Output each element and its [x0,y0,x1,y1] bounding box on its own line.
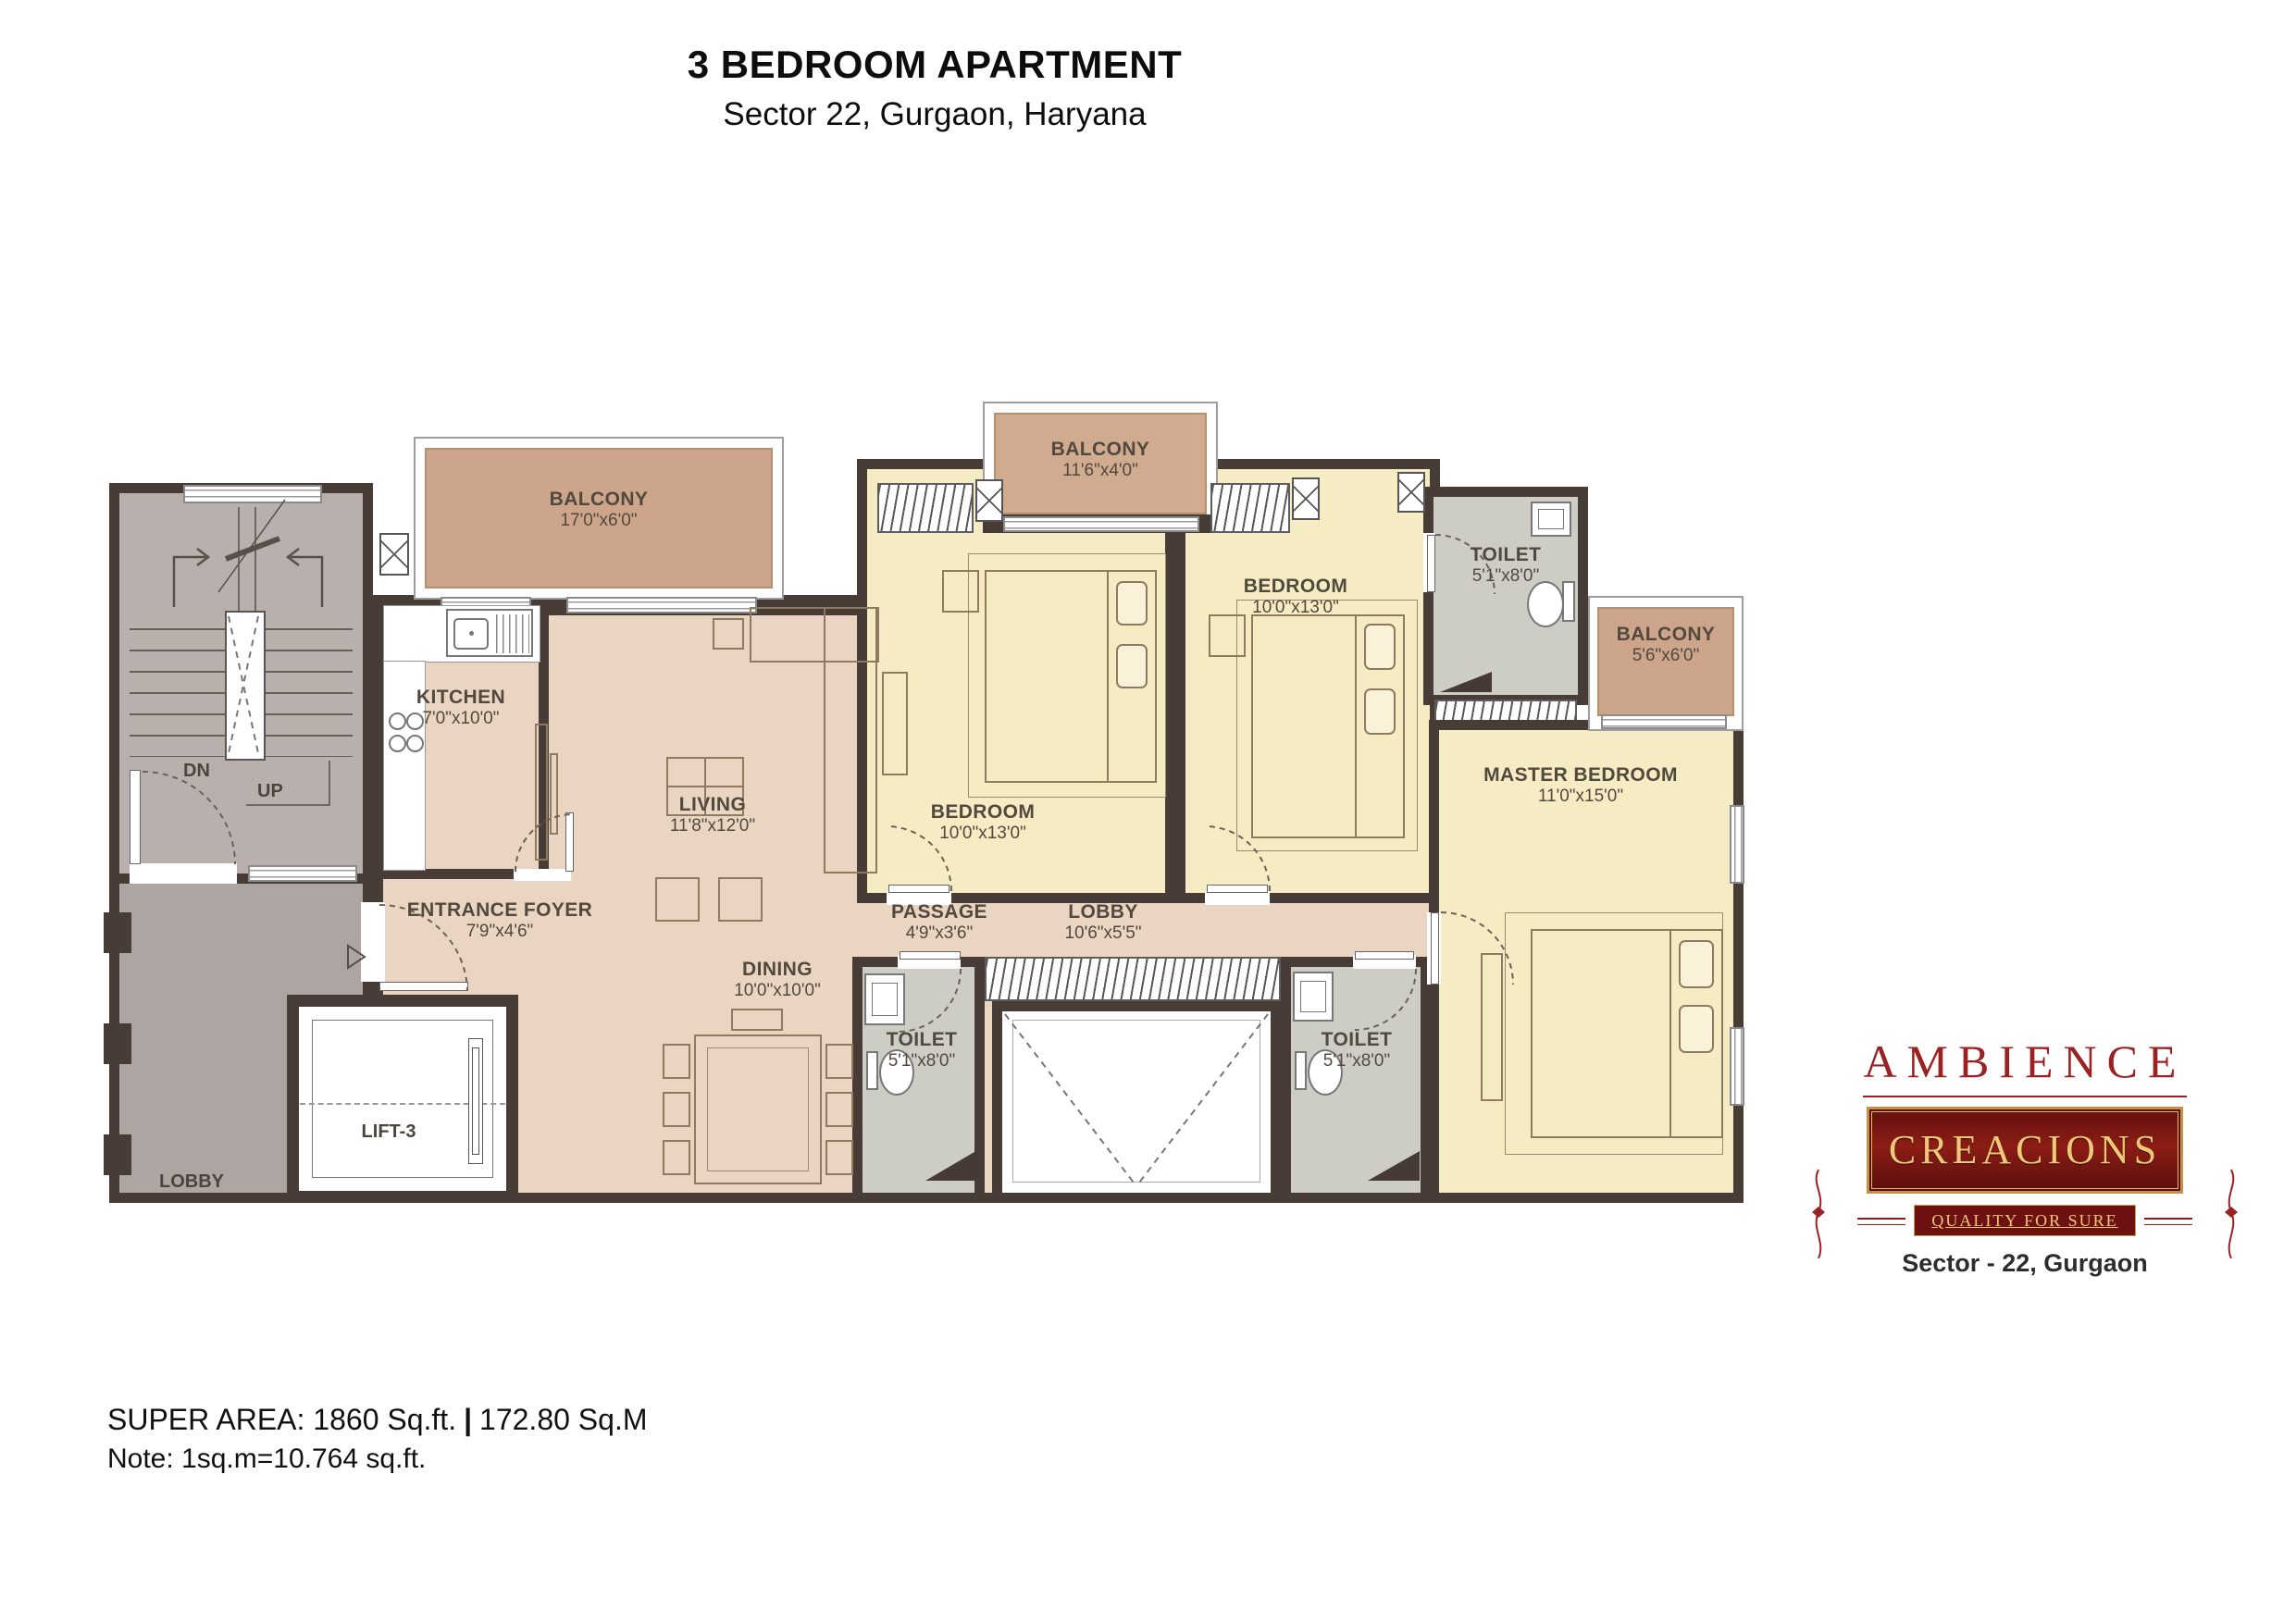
duct-shaft-icon [379,533,409,576]
room-label-toilet-bl: TOILET5'1"x8'0" [887,1029,958,1072]
page-subtitle: Sector 22, Gurgaon, Haryana [102,96,1768,133]
dining-chair [663,1140,690,1175]
room-label-balcony-mid: BALCONY11'6"x4'0" [1051,439,1150,481]
room-label-dining: DINING10'0"x10'0" [734,959,821,1001]
duct-shaft-icon [975,479,1003,522]
separator-bar: | [456,1403,479,1436]
stair-dn-label: DN [183,761,210,782]
room-label-living: LIVING11'8"x12'0" [670,794,755,836]
super-area-m: 172.80 Sq.M [479,1403,647,1436]
duct-shaft-icon [1397,472,1425,513]
wc-tank [1295,1051,1307,1090]
pillow [1364,624,1396,670]
flourish-left-icon [1808,1168,1829,1260]
room-label-passage: PASSAGE4'9"x3'6" [891,901,987,944]
brand-location: Sector - 22, Gurgaon [1831,1249,2219,1278]
tv-unit [535,724,548,861]
duct-shaft-icon [1292,477,1320,520]
door-gap-kitchen [514,869,571,881]
door-leaf-stair [130,770,141,864]
room-label-balcony-tl: BALCONY17'0"x6'0" [550,489,649,531]
window-balcony-tl-b [566,597,757,613]
brand-name: AMBIENCE [1863,1035,2186,1097]
bedside-table [1209,614,1246,657]
stair-treads-left [130,609,227,757]
flourish-right-icon [2221,1168,2241,1260]
wardrobe-hatch-lobby [985,957,1281,1001]
super-area-line: SUPER AREA: 1860 Sq.ft.|172.80 Sq.M [107,1403,647,1437]
bed-fold-line [1669,931,1671,1136]
wc-bowl [1527,581,1564,627]
door-leaf-bedroom2 [1207,885,1268,893]
door-leaf-master [1431,912,1439,985]
pillow [1679,940,1714,988]
washbasin-bowl [1300,981,1326,1012]
room-label-lobby-inner: LOBBY10'6"x5'5" [1064,901,1141,944]
stair-up-label: UP [257,781,283,802]
window-balcony-mid [1003,516,1199,532]
door-leaf-entry [379,982,468,991]
pillow [1679,1005,1714,1053]
pillow [1364,688,1396,735]
room-label-bedroom2: BEDROOM10'0"x13'0" [1244,576,1347,618]
window-hatch-bedroom2 [1210,483,1290,533]
pillow [1116,581,1148,626]
window-stair-bottom [248,865,357,882]
door-gap-entry [361,902,385,982]
side-table [713,618,744,650]
door-gap-stair [130,863,237,884]
page: 3 BEDROOM APARTMENT Sector 22, Gurgaon, … [0,0,2296,1623]
exterior-lobby-label: LOBBY [159,1171,224,1193]
lobby-pillar [104,912,131,953]
dining-chair [825,1044,853,1079]
floor-plan: BALCONY17'0"x6'0" BALCONY11'6"x4'0" BALC… [102,398,1768,1240]
super-area-ft: SUPER AREA: 1860 Sq.ft. [107,1403,456,1436]
window-hatch-bedroom1 [877,483,974,533]
stair-treads-right [256,609,353,757]
room-label-bedroom1: BEDROOM10'0"x13'0" [931,801,1035,844]
room-label-balcony-r: BALCONY5'6"x6'0" [1617,624,1716,666]
wc-tank [1562,581,1575,622]
ottoman [655,877,700,922]
tv-panel [550,753,558,835]
lobby-pillar [104,1134,131,1175]
lift-label: LIFT-3 [362,1121,416,1143]
page-title: 3 BEDROOM APARTMENT [102,43,1768,87]
master-bench [1481,953,1503,1101]
dining-chair [825,1092,853,1127]
bed-fold-line [1107,572,1109,781]
window-master-b [1730,1027,1744,1106]
dining-chair [731,1009,783,1031]
door-leaf-toilet-top [1427,535,1435,592]
room-label-toilet-br: TOILET5'1"x8'0" [1322,1029,1393,1072]
lobby-pillar [104,1023,131,1064]
brand-tagline: QUALITY FOR SURE [1914,1205,2136,1236]
window-stair-top [183,485,322,503]
door-leaf-toilet-bl [900,951,961,960]
dining-table-inner [707,1047,809,1171]
sofa-side [824,607,877,873]
washbasin-bowl [1538,509,1564,529]
door-leaf-bedroom1 [888,885,949,893]
dining-chair [663,1092,690,1127]
window-balcony-r [1601,714,1727,729]
door-leaf-toilet-br [1355,951,1414,960]
bedside-table [942,570,979,613]
conversion-note: Note: 1sq.m=10.764 sq.ft. [107,1443,426,1475]
window-master-a [1730,805,1744,884]
dining-chair [663,1044,690,1079]
sink-drainboard [496,614,529,653]
bed-fold-line [1355,616,1357,836]
room-label-master: MASTER BEDROOM11'0"x15'0" [1483,764,1678,807]
door-leaf-kitchen [565,812,574,872]
bedroom1-dresser [882,672,908,775]
lift-car-outline [312,1020,493,1178]
tagline-text: QUALITY FOR SURE [1931,1211,2117,1230]
brand-sub-name: CREACIONS [1867,1107,2183,1194]
room-label-toilet-top: TOILET5'1"x8'0" [1471,544,1542,587]
stair-mid-landing [225,611,266,761]
ottoman [718,877,763,922]
pillow [1116,644,1148,688]
lift-door-rail-inner [472,1047,479,1155]
room-label-foyer: ENTRANCE FOYER7'9"x4'6" [407,899,592,942]
dining-chair [825,1140,853,1175]
sink-drain [469,631,474,636]
shaft-inner-line [1012,1020,1260,1183]
wc-tank [866,1051,878,1090]
room-label-kitchen: KITCHEN7'0"x10'0" [416,687,505,729]
developer-logo: AMBIENCE CREACIONS QUALITY FOR SURE Sect… [1831,1035,2219,1278]
door-gap-bedroom2 [1205,891,1270,905]
washbasin-bowl [872,983,898,1016]
